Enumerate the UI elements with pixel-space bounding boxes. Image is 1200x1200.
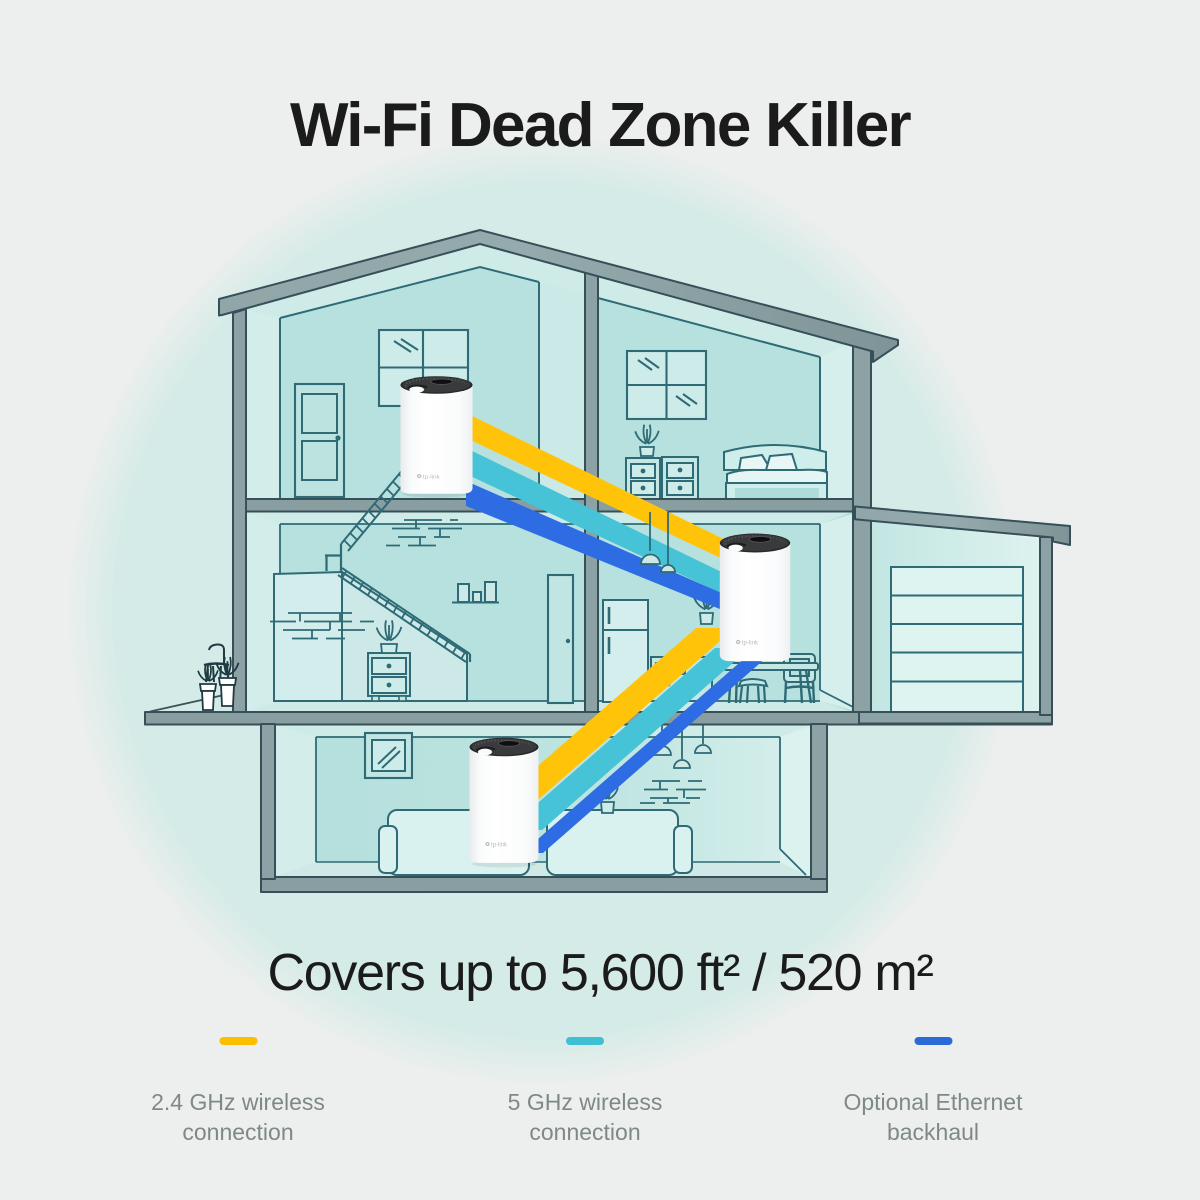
svg-text:Covers up to 5,600 ft² / 520 m: Covers up to 5,600 ft² / 520 m² — [268, 944, 934, 1002]
svg-text:5 GHz wireless: 5 GHz wireless — [508, 1089, 663, 1115]
svg-text:Optional Ethernet: Optional Ethernet — [843, 1089, 1023, 1115]
svg-text:connection: connection — [182, 1119, 293, 1145]
svg-text:backhaul: backhaul — [887, 1119, 979, 1145]
svg-text:2.4 GHz wireless: 2.4 GHz wireless — [151, 1089, 325, 1115]
svg-text:Wi-Fi Dead Zone Killer: Wi-Fi Dead Zone Killer — [290, 91, 912, 160]
svg-text:connection: connection — [529, 1119, 640, 1145]
